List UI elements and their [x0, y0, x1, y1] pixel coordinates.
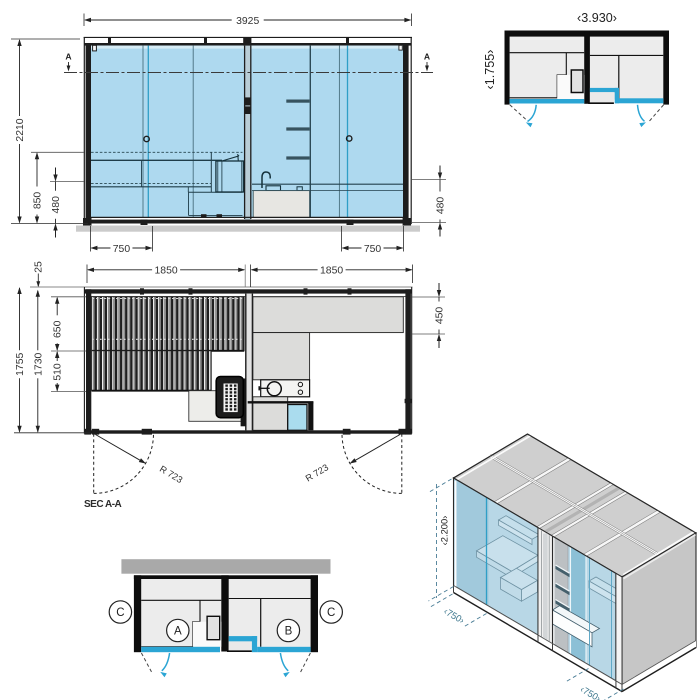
svg-text:25: 25	[34, 261, 45, 273]
svg-text:A: A	[424, 52, 430, 62]
svg-text:‹2.200›: ‹2.200›	[439, 516, 450, 546]
svg-text:A: A	[65, 52, 71, 62]
svg-text:‹3.930›: ‹3.930›	[577, 11, 617, 25]
svg-text:SEC A-A: SEC A-A	[84, 499, 122, 510]
svg-text:850: 850	[33, 192, 44, 210]
svg-text:650: 650	[53, 320, 64, 338]
svg-text:2210: 2210	[15, 118, 26, 141]
svg-text:C: C	[116, 607, 124, 619]
svg-text:750: 750	[364, 244, 382, 255]
svg-text:1850: 1850	[155, 266, 178, 277]
svg-text:510: 510	[53, 363, 64, 381]
svg-text:450: 450	[435, 307, 446, 325]
svg-text:A: A	[174, 626, 182, 638]
svg-text:C: C	[327, 607, 335, 619]
svg-text:1730: 1730	[33, 353, 44, 376]
svg-text:480: 480	[436, 197, 447, 215]
svg-text:480: 480	[51, 196, 62, 214]
svg-text:750: 750	[113, 244, 131, 255]
svg-text:1850: 1850	[320, 266, 343, 277]
svg-text:3925: 3925	[236, 16, 259, 27]
svg-text:B: B	[285, 626, 293, 638]
svg-text:‹1.755›: ‹1.755›	[483, 50, 497, 90]
svg-text:1755: 1755	[15, 353, 26, 376]
